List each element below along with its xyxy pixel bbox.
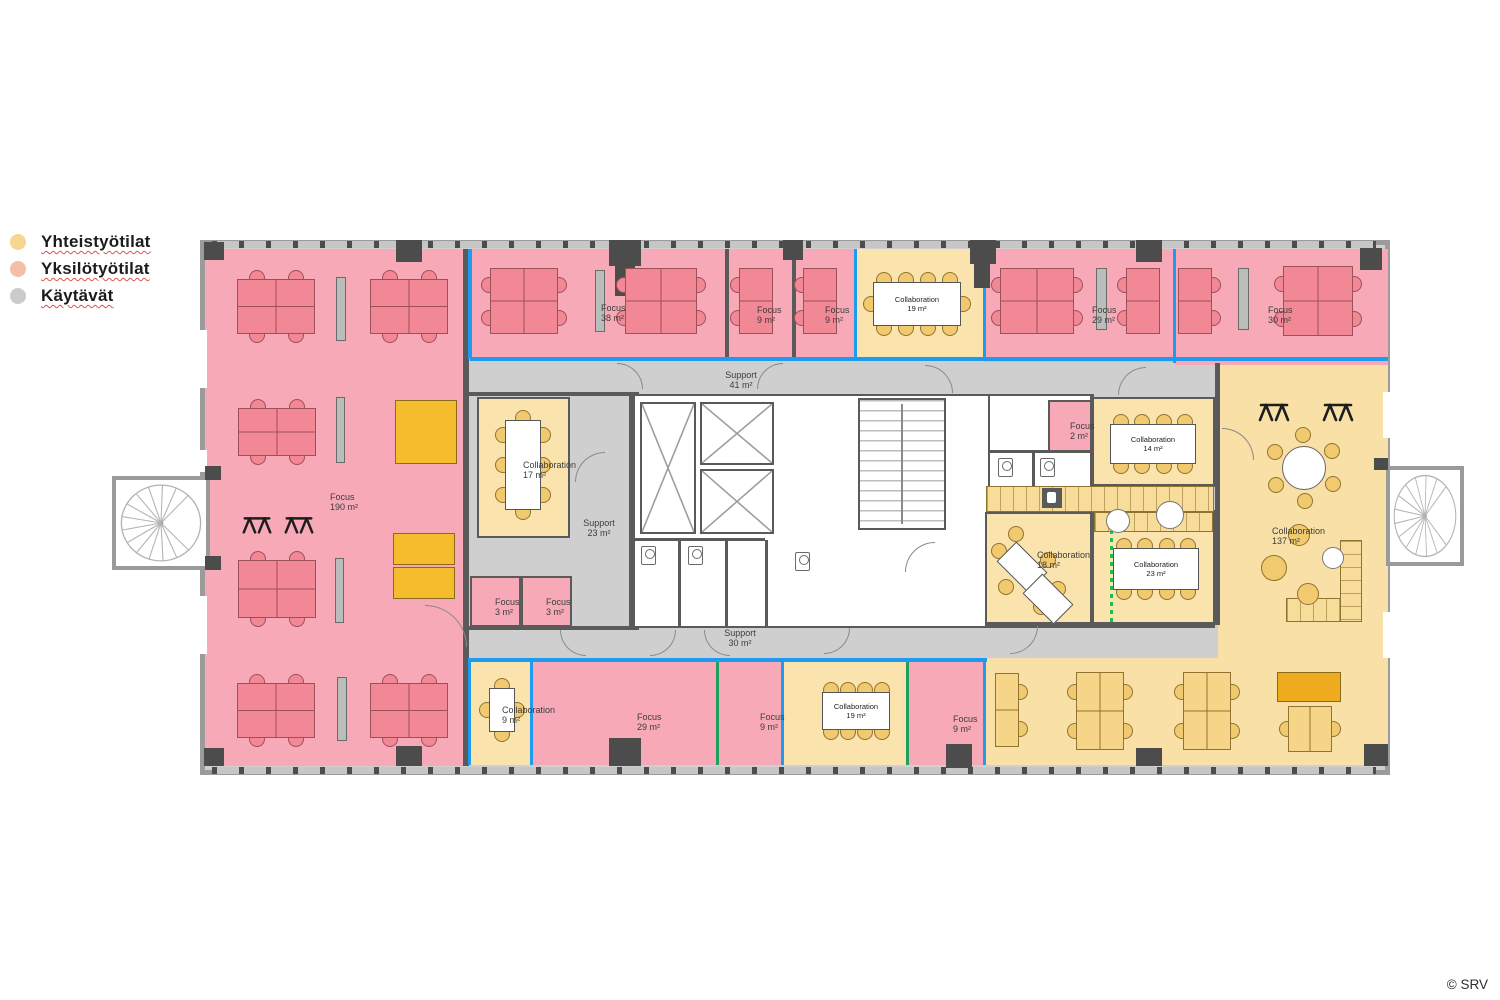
- desk: [490, 268, 558, 334]
- cabinet: [393, 533, 455, 565]
- legend: YhteistyötilatYksilötyötilatKäytävät: [10, 232, 151, 313]
- desk: Collaboration23 m²: [1113, 548, 1199, 590]
- wall: [635, 538, 765, 541]
- desk: [370, 683, 448, 738]
- glass-partition-blue: [468, 658, 987, 662]
- toilet-icon: [998, 458, 1013, 477]
- standing-desk-icon: [240, 510, 274, 538]
- desk: Collaboration19 m²: [873, 282, 961, 326]
- window: [1383, 612, 1391, 658]
- wall: [1215, 363, 1220, 625]
- standing-desk-icon: [1256, 396, 1292, 426]
- meeting-room-label: Collaboration23 m²: [1114, 549, 1198, 589]
- divider-panel: [337, 677, 347, 741]
- toilet-icon: [641, 546, 656, 565]
- legend-label: Käytävät: [41, 286, 113, 306]
- pouf: [1261, 555, 1287, 581]
- glass-partition-blue: [983, 662, 986, 765]
- legend-item-kaytavat: Käytävät: [10, 286, 151, 306]
- copyright: © SRV: [1447, 977, 1488, 992]
- elevator: [700, 402, 774, 465]
- column: [1136, 748, 1162, 766]
- desk: Collaboration14 m²: [1110, 424, 1196, 464]
- chair-icon: [1324, 443, 1340, 459]
- desk: [237, 683, 315, 738]
- column: [1364, 744, 1388, 766]
- elevator: [640, 402, 696, 534]
- glass-partition-blue: [468, 249, 472, 359]
- column: [970, 240, 996, 264]
- glass-partition-green: [906, 662, 909, 765]
- column: [205, 556, 221, 570]
- desk: Collaboration19 m²: [822, 692, 890, 730]
- divider-panel: [336, 277, 346, 341]
- meeting-room-label: Collaboration19 m²: [874, 283, 960, 325]
- chair-icon: [1325, 476, 1341, 492]
- desk: [370, 279, 448, 334]
- desk: [1000, 268, 1074, 334]
- standing-desk-icon: [1320, 396, 1356, 426]
- column: [1374, 458, 1388, 470]
- desk: [238, 560, 316, 618]
- wall: [629, 392, 633, 630]
- column: [205, 466, 221, 480]
- desk: [1076, 672, 1124, 750]
- glass-partition-green: [716, 662, 719, 765]
- chair-icon: [1268, 477, 1284, 493]
- kitchen-counter: [1340, 540, 1362, 622]
- toilet-icon: [1040, 458, 1055, 477]
- pouf: [1297, 583, 1319, 605]
- column: [1136, 240, 1162, 262]
- wall: [725, 541, 728, 626]
- meeting-room-label: Collaboration19 m²: [823, 693, 889, 729]
- column: [783, 240, 803, 260]
- desk: [1183, 672, 1231, 750]
- legend-label: Yhteistyötilat: [41, 232, 151, 252]
- chair-icon: [1297, 493, 1313, 509]
- legend-color-dot: [10, 261, 26, 277]
- desk: [1126, 268, 1160, 334]
- toilet-icon: [795, 552, 810, 571]
- wall: [467, 392, 639, 396]
- meeting-room-label: Collaboration14 m²: [1111, 425, 1195, 463]
- column: [396, 240, 422, 262]
- elevator: [700, 469, 774, 534]
- floor-plan: Focus190 m²Focus38 m²Focus9 m²Focus9 m²F…: [0, 0, 1500, 1000]
- window: [1383, 392, 1391, 438]
- wall: [990, 450, 1090, 453]
- window: [199, 596, 207, 654]
- cabinet: [395, 400, 457, 464]
- legend-color-dot: [10, 288, 26, 304]
- spiral-stair-left: [112, 476, 210, 570]
- round-table: [1282, 446, 1326, 490]
- wall: [678, 541, 681, 626]
- wall: [765, 540, 768, 626]
- desk: [1283, 266, 1353, 336]
- desk: [238, 408, 316, 456]
- support-label: Support30 m²: [724, 628, 756, 648]
- column: [1360, 248, 1382, 270]
- chair-icon: [1008, 526, 1024, 542]
- column: [974, 262, 990, 288]
- column: [204, 242, 224, 260]
- round-table-small: [1156, 501, 1184, 529]
- desk: [995, 673, 1019, 747]
- cabinet: [1277, 672, 1341, 702]
- desk: [625, 268, 697, 334]
- glass-partition-blue: [854, 249, 857, 359]
- standing-desk-icon: [282, 510, 316, 538]
- desk: [1178, 268, 1212, 334]
- stair-rail: [901, 404, 903, 524]
- desk: [1288, 706, 1332, 752]
- glass-partition-blue: [470, 357, 1388, 361]
- toilet-icon: [688, 546, 703, 565]
- desk: [237, 279, 315, 334]
- round-table-small: [1322, 547, 1344, 569]
- glass-partition-blue: [468, 662, 471, 765]
- support-label: Support23 m²: [583, 518, 615, 538]
- legend-color-dot: [10, 234, 26, 250]
- wall: [792, 249, 796, 361]
- column: [946, 744, 972, 768]
- column: [204, 748, 224, 766]
- cabinet: [393, 567, 455, 599]
- legend-label: Yksilötyötilat: [41, 259, 150, 279]
- support-label: Support41 m²: [725, 370, 757, 390]
- legend-item-yksilotyotilat: Yksilötyötilat: [10, 259, 151, 279]
- legend-item-yhteistyotilat: Yhteistyötilat: [10, 232, 151, 252]
- wall: [725, 249, 729, 361]
- window-mullions: [212, 767, 1376, 774]
- column: [609, 738, 641, 766]
- divider-panel: [1238, 268, 1249, 330]
- wall: [467, 626, 639, 630]
- sink-icon: [1042, 488, 1062, 508]
- chair-icon: [998, 579, 1014, 595]
- window: [199, 330, 207, 388]
- divider-panel: [336, 397, 345, 463]
- divider-panel: [335, 558, 344, 623]
- column: [396, 746, 422, 766]
- glass-partition-blue: [1173, 249, 1176, 363]
- round-table-small: [1106, 509, 1130, 533]
- spiral-stair-right: [1386, 466, 1464, 566]
